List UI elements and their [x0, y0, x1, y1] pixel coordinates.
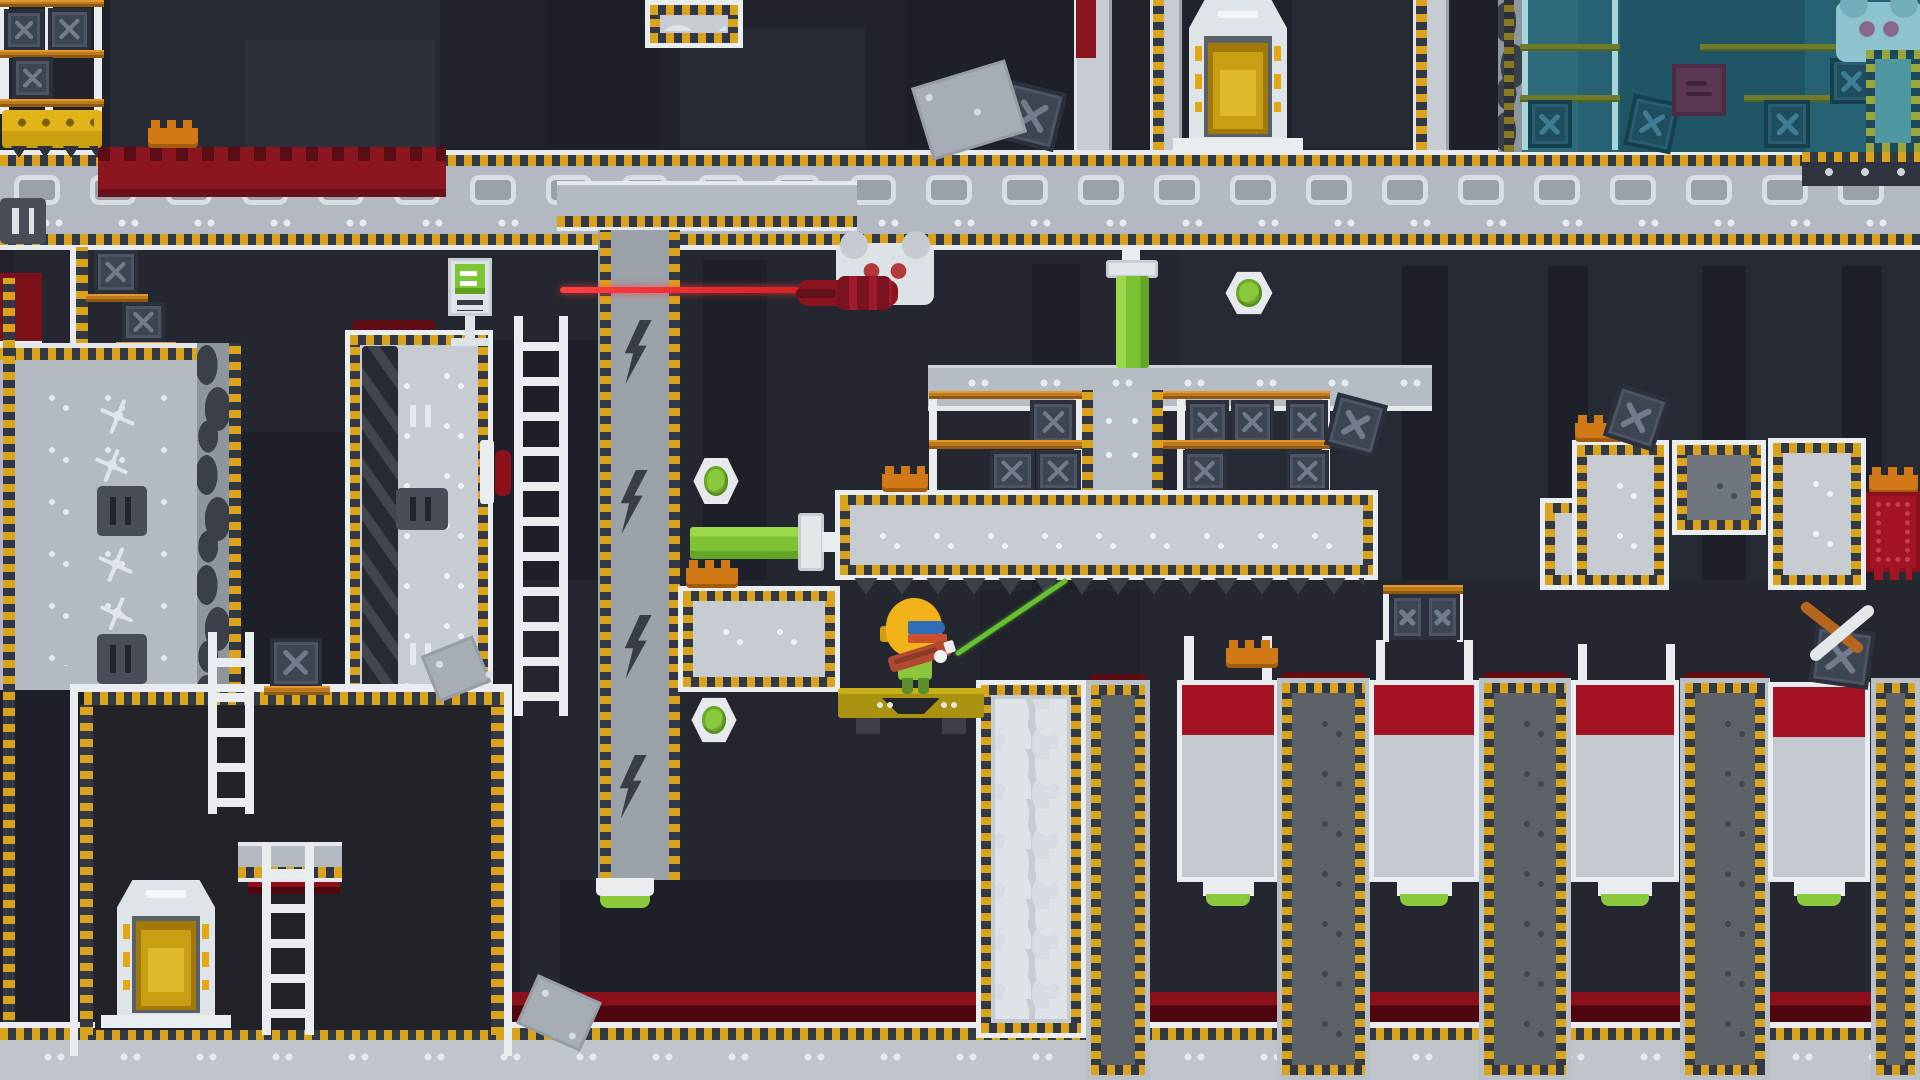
laser-beam — [560, 287, 805, 293]
band-cutout — [1686, 175, 1732, 205]
x-crate — [122, 302, 165, 342]
turret-cannon — [798, 280, 898, 306]
player-leg — [918, 678, 929, 694]
kiosk-base — [451, 338, 490, 346]
door-panel — [1220, 70, 1256, 116]
crusher-piston — [1571, 680, 1679, 908]
rack-shelf — [264, 686, 330, 695]
crusher-frame — [1369, 680, 1479, 882]
platform-notch — [882, 698, 940, 714]
x-crate — [1286, 400, 1328, 445]
yellow-machine — [2, 110, 102, 148]
water-shelf — [1520, 44, 1620, 51]
x-crate — [12, 57, 53, 99]
rack-shelf — [0, 99, 104, 107]
red-button — [495, 450, 511, 496]
platform-leg — [942, 718, 966, 734]
crusher-green-pad — [1601, 894, 1649, 906]
rack-shelf — [1163, 391, 1330, 399]
crusher-red-top — [1576, 685, 1674, 735]
x-crate — [4, 9, 44, 51]
sunken-crate — [1528, 100, 1572, 148]
door-window-slot — [146, 890, 186, 897]
sunken-crate — [1764, 100, 1810, 148]
crusher-piston — [1768, 682, 1870, 908]
crusher-green-pad — [1206, 894, 1251, 906]
dark-pillar — [1871, 678, 1920, 1080]
door-panel — [148, 948, 184, 992]
hazard-edge — [3, 278, 15, 1068]
ladder[interactable] — [208, 632, 254, 814]
rack-post — [1383, 594, 1389, 642]
ladder[interactable] — [262, 843, 314, 1035]
room-edge — [504, 692, 512, 1056]
kiosk-screen — [455, 264, 485, 294]
x-crate — [270, 638, 322, 688]
door-light-right — [202, 924, 209, 989]
spike-platform — [835, 490, 1378, 580]
band-cutout — [926, 175, 972, 205]
game-viewport — [0, 0, 1920, 1080]
crusher-green-pad — [1797, 894, 1842, 906]
crusher-piston — [1177, 680, 1279, 908]
player-visor — [908, 621, 945, 634]
hanging-block — [645, 0, 743, 48]
water-platform — [1866, 50, 1920, 152]
hanger-rod — [1666, 644, 1675, 684]
orange-bracket — [882, 474, 928, 492]
hazard-edge — [80, 705, 93, 1035]
green-pad — [600, 896, 650, 908]
green-piston-horizontal — [690, 527, 804, 559]
x-crate — [1036, 450, 1081, 492]
bg-panel — [545, 0, 660, 148]
kiosk-slots — [457, 300, 483, 311]
wall-foot — [596, 878, 654, 896]
player-leg — [902, 678, 913, 694]
orange-bracket — [148, 128, 198, 148]
player-character[interactable] — [876, 598, 956, 694]
vent-box — [97, 634, 147, 684]
door-light-left — [1195, 46, 1202, 113]
hazard-edge — [1504, 0, 1514, 152]
kiosk-leg — [465, 316, 476, 338]
door-light-right — [1274, 46, 1281, 113]
turret-eyes — [1855, 21, 1903, 37]
vent-box — [97, 486, 147, 536]
hazard-edge — [1416, 0, 1427, 150]
green-piston-vertical — [1116, 276, 1149, 368]
x-crate — [990, 450, 1035, 492]
shattered-column — [976, 680, 1086, 1038]
band-cutout — [1382, 175, 1428, 205]
band-cutout — [1154, 175, 1200, 205]
door-pedestal — [101, 1015, 231, 1028]
crusher-green-pad — [1400, 894, 1448, 906]
dark-block — [1672, 440, 1766, 535]
crack-splat — [100, 598, 134, 628]
terminal-kiosk[interactable] — [448, 258, 492, 346]
ledge-block — [678, 586, 840, 692]
x-crate — [1030, 400, 1076, 445]
rack-shelf — [1163, 440, 1330, 449]
platform-leg — [856, 718, 880, 734]
band-cutout — [1458, 175, 1504, 205]
hanger-rod — [1578, 644, 1587, 684]
hazard-ramp — [1802, 150, 1920, 186]
hanging-ledge — [557, 181, 857, 231]
gold-door-exit[interactable] — [110, 880, 222, 1028]
dark-pillar — [1277, 678, 1370, 1080]
band-cutout — [1306, 175, 1352, 205]
rack-shelf — [929, 391, 1082, 399]
orange-bracket — [686, 568, 738, 588]
band-cutout — [1610, 175, 1656, 205]
player-hand — [934, 650, 947, 663]
red-crusher — [1866, 492, 1920, 572]
door-pedestal — [1173, 138, 1303, 152]
band-cutout — [1078, 175, 1124, 205]
crusher-red-top — [1182, 685, 1274, 735]
crusher-frame — [1177, 680, 1279, 882]
x-crate — [94, 250, 138, 294]
vent-box — [0, 198, 46, 244]
x-crate — [1183, 450, 1227, 492]
x-crate — [1186, 400, 1229, 445]
step-platform — [1572, 440, 1669, 590]
crusher-frame — [1768, 682, 1870, 882]
column-block — [1082, 390, 1163, 496]
x-crate — [1286, 450, 1329, 492]
hanger-rod — [1184, 636, 1194, 686]
band-cutout — [1002, 175, 1048, 205]
band-cutout — [1534, 175, 1580, 205]
rack-shelf — [1383, 585, 1463, 594]
bg-panel — [245, 40, 435, 148]
bg-panel — [1292, 0, 1414, 148]
ladder[interactable] — [514, 316, 568, 716]
crack-splat — [95, 450, 129, 480]
crusher-red-top — [1773, 687, 1865, 737]
spikes — [848, 578, 1364, 595]
step-platform — [1768, 438, 1866, 590]
red-hazard-bar — [98, 147, 446, 197]
door-window-slot — [1218, 11, 1258, 19]
crusher-frame — [1571, 680, 1679, 882]
cargo-crate — [1672, 64, 1726, 116]
hazard-edge — [600, 230, 611, 880]
hazard-edge — [1153, 0, 1164, 150]
red-panel — [1076, 0, 1096, 58]
crack-splat — [100, 400, 136, 432]
rack-shelf — [86, 294, 148, 302]
crusher-piston — [1369, 680, 1479, 908]
x-crate — [48, 8, 91, 51]
dark-pillar — [1680, 678, 1770, 1080]
orange-bracket — [1226, 648, 1278, 668]
vent-box — [396, 488, 448, 530]
crack-splat — [98, 548, 134, 580]
crusher-red-top — [1374, 685, 1474, 735]
dark-pillar — [1086, 680, 1150, 1080]
hazard-edge — [491, 705, 504, 1035]
band-cutout — [1230, 175, 1276, 205]
rack-shelf — [929, 440, 1082, 449]
button-mount — [480, 440, 494, 504]
gold-door-top[interactable] — [1182, 0, 1294, 152]
band-cutout — [470, 175, 516, 205]
water-post — [1612, 0, 1618, 150]
piston-head — [798, 513, 824, 571]
door-light-left — [123, 924, 130, 989]
x-crate — [1425, 594, 1460, 640]
rack-shelf — [0, 0, 104, 7]
vent-slots — [406, 402, 440, 430]
room-edge — [70, 692, 78, 1056]
x-crate — [1390, 594, 1425, 640]
dark-pillar — [1479, 678, 1571, 1080]
hazard-edge — [669, 230, 680, 880]
x-crate — [1231, 400, 1274, 445]
